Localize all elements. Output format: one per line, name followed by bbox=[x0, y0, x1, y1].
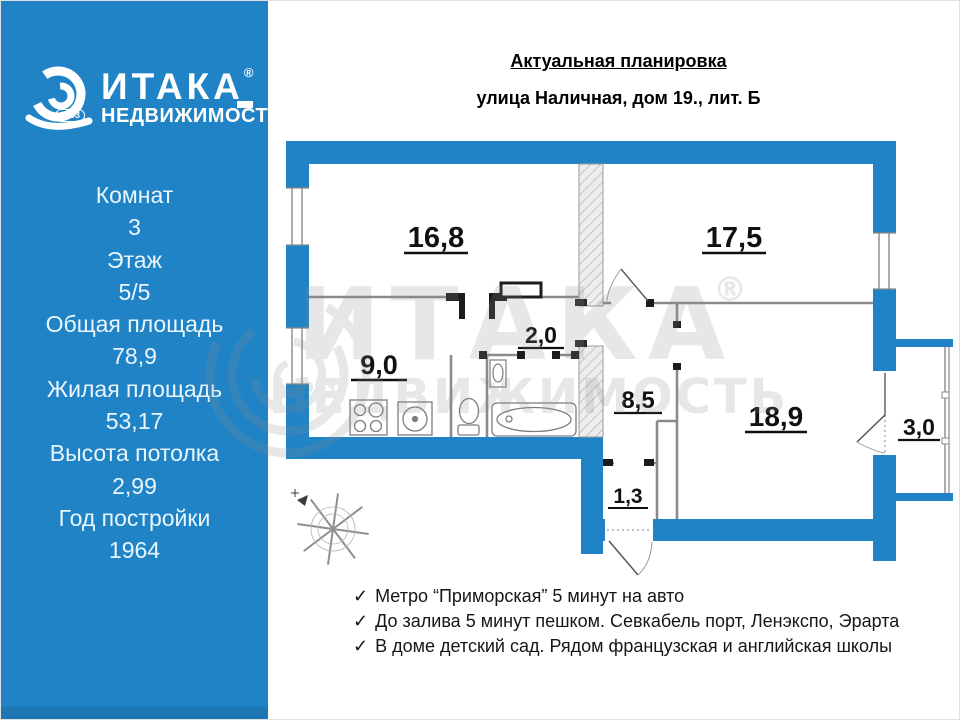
compass-rose bbox=[291, 488, 374, 569]
watermark-registered: ® bbox=[713, 270, 747, 310]
window-left-1 bbox=[286, 188, 309, 245]
window-right bbox=[873, 233, 896, 289]
watermark-tagline: НЕДВИЖИМОСТЬ bbox=[269, 369, 790, 425]
watermark-brand: ИТАКА bbox=[297, 266, 735, 383]
room-label-living1: 16,8 bbox=[408, 222, 464, 254]
floor-plan: 16,8 17,5 9,0 2,0 8,5 18,9 3,0 1,3 bbox=[1, 1, 960, 720]
flyer-canvas: ИТАКА® НЕДВИЖИМОСТЬ 1993 Комнат 3 Этаж 5… bbox=[0, 0, 960, 720]
watermark-year: 1993 bbox=[292, 378, 337, 397]
room-label-vestibule: 1,3 bbox=[613, 485, 642, 508]
balcony-door bbox=[857, 371, 896, 455]
entrance-door bbox=[605, 519, 653, 575]
room-label-balcony: 3,0 bbox=[903, 414, 935, 440]
room-label-living2: 17,5 bbox=[706, 222, 762, 254]
